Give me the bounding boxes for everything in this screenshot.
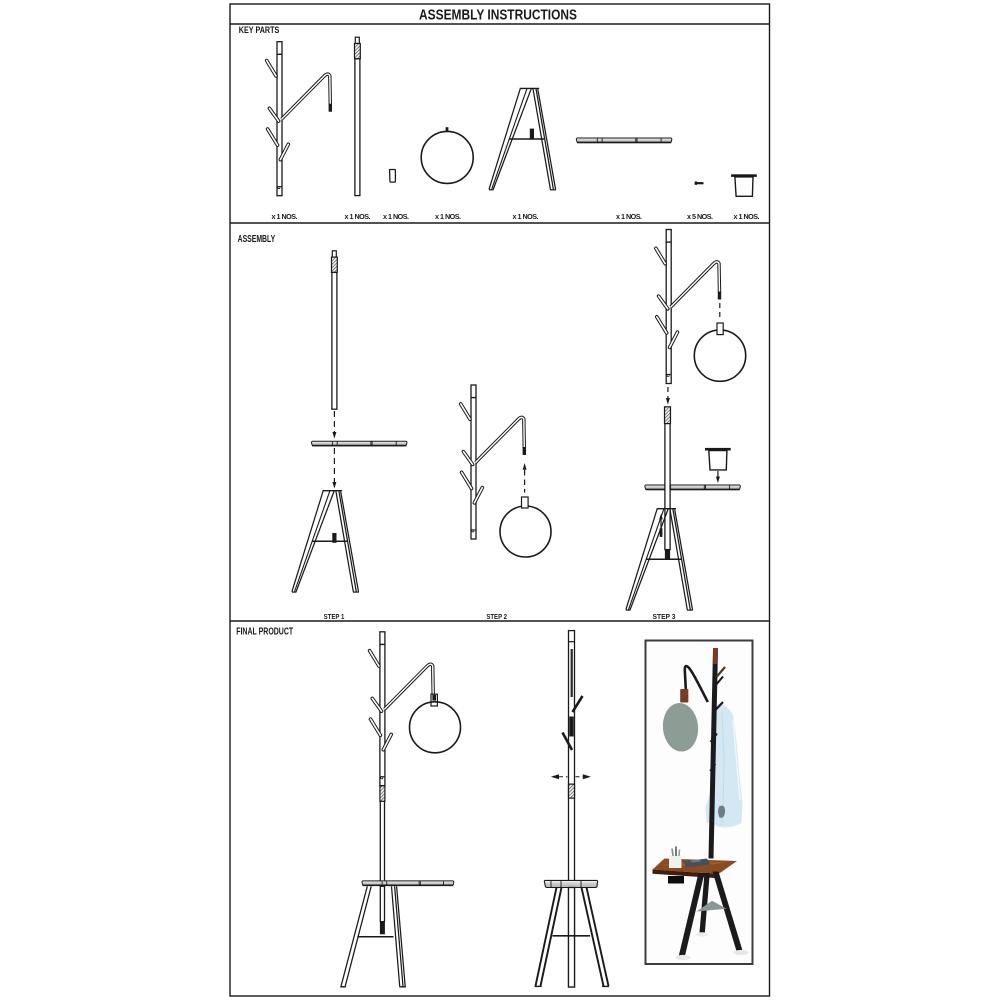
svg-text:x 1 NOS.: x 1 NOS. [345,212,371,221]
svg-text:x 1 NOS.: x 1 NOS. [616,212,642,221]
svg-text:FINAL PRODUCT: FINAL PRODUCT [236,625,293,637]
svg-text:x 1 NOS.: x 1 NOS. [383,212,409,221]
svg-text:STEP 1: STEP 1 [324,612,345,621]
svg-text:ASSEMBLY INSTRUCTIONS: ASSEMBLY INSTRUCTIONS [419,7,577,23]
svg-text:x 1 NOS.: x 1 NOS. [435,212,461,221]
svg-text:STEP 3: STEP 3 [653,612,676,621]
svg-text:x 1 NOS.: x 1 NOS. [272,212,298,221]
svg-text:KEY PARTS: KEY PARTS [239,24,279,35]
svg-text:STEP 2: STEP 2 [486,612,507,621]
svg-text:x 1 NOS.: x 1 NOS. [734,212,760,221]
svg-text:x 5 NOS.: x 5 NOS. [687,212,713,221]
svg-text:x 1 NOS.: x 1 NOS. [513,212,539,221]
svg-text:ASSEMBLY: ASSEMBLY [238,233,276,245]
